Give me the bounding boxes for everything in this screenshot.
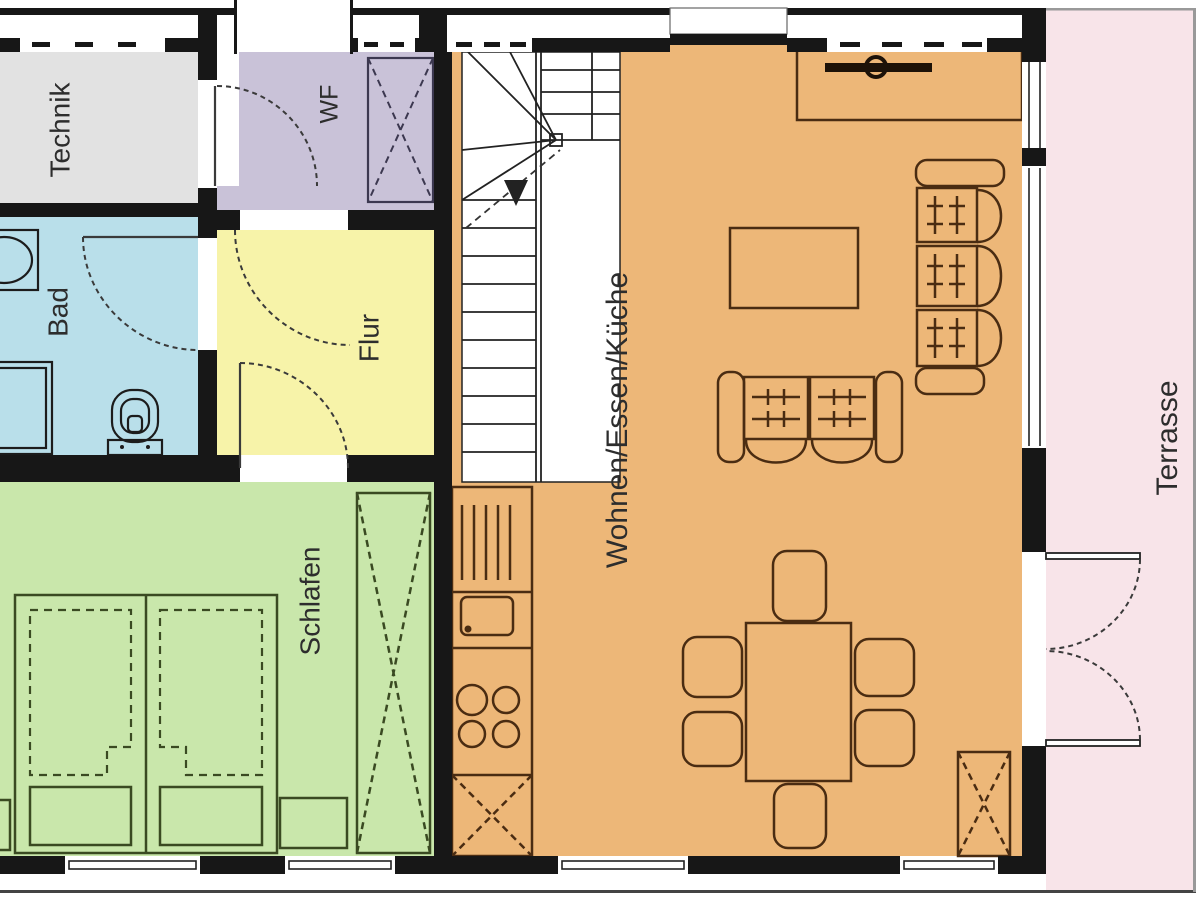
- sink-faucet-icon: [465, 626, 472, 633]
- room-label-terrasse: Terrasse: [1151, 380, 1184, 495]
- floor-plan-drawing: Technik WF Bad Flur Schlafen Wohnen/Esse…: [0, 0, 1200, 900]
- window-bottom-bed: [65, 858, 200, 872]
- window-bottom-right: [900, 858, 998, 872]
- room-label-flur: Flur: [353, 314, 384, 362]
- outer-sill-line: [0, 890, 1196, 893]
- floor-plan: Technik WF Bad Flur Schlafen Wohnen/Esse…: [0, 0, 1200, 900]
- entrance-recess-edge: [234, 0, 237, 54]
- terrace-top-edge: [1046, 8, 1196, 11]
- room-label-schlafen: Schlafen: [294, 547, 325, 656]
- wf-entry-strip: [217, 52, 239, 186]
- room-technik: [0, 52, 198, 203]
- window-bottom-dining: [558, 858, 688, 872]
- window-top-stairs: [447, 38, 532, 52]
- room-label-technik: Technik: [44, 82, 75, 178]
- room-label-bad: Bad: [42, 287, 73, 337]
- room-label-wf: WF: [316, 85, 344, 124]
- window-bottom-wardrobe: [285, 858, 395, 872]
- window-right-upper: [1022, 58, 1046, 152]
- room-wf: [217, 52, 434, 210]
- tv-icon: [825, 63, 932, 72]
- window-top-living: [827, 38, 987, 52]
- window-top-wf: [358, 38, 415, 52]
- terrace-right-edge: [1193, 8, 1196, 892]
- window-right-sofa: [1022, 162, 1046, 452]
- window-top-technik: [20, 38, 165, 52]
- window-bay: [670, 8, 787, 34]
- room-label-wohnen-essen-kueche: Wohnen/Essen/Küche: [601, 272, 634, 568]
